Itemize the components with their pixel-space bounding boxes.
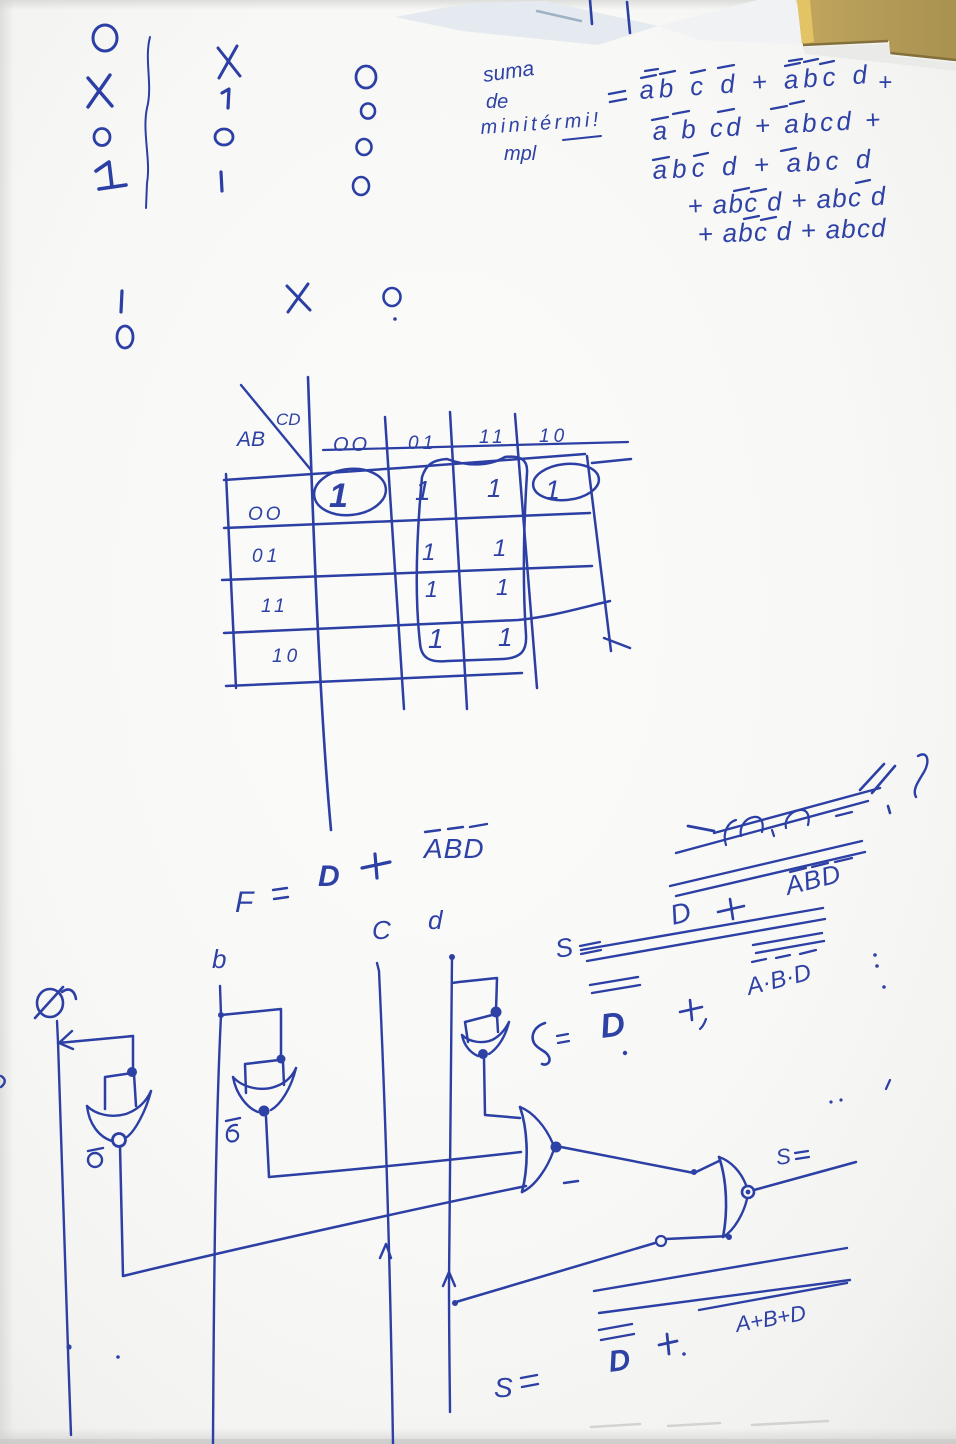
svg-text:+: + [878,69,892,96]
svg-text:D: D [598,1005,628,1046]
svg-text:S: S [494,1372,513,1403]
svg-text:OO: OO [248,504,284,525]
svg-text:C: C [372,915,391,945]
svg-text:01: 01 [252,546,281,567]
svg-text:1: 1 [425,576,438,602]
svg-text:10: 10 [539,426,568,447]
svg-text:de: de [486,91,508,113]
svg-text:10: 10 [272,646,301,667]
svg-text:d: d [428,905,444,935]
svg-text:b: b [212,944,226,974]
svg-text:1: 1 [428,623,444,654]
svg-text:1: 1 [496,574,509,600]
svg-text:01: 01 [408,433,437,454]
svg-text:11: 11 [261,596,289,617]
svg-text:1: 1 [422,539,435,566]
svg-text:D: D [606,1343,632,1379]
svg-text:11: 11 [479,427,507,448]
svg-text:mpl: mpl [504,143,537,165]
svg-text:1: 1 [545,475,560,505]
svg-text:1: 1 [493,535,506,562]
svg-text:1: 1 [329,477,348,515]
svg-text:1: 1 [487,473,501,503]
svg-text:ABD: ABD [422,833,485,864]
svg-text:D: D [318,860,340,893]
svg-text:F: F [235,886,255,919]
svg-text:AB: AB [235,428,265,451]
svg-text:1: 1 [415,475,431,506]
svg-text:OO: OO [333,434,370,456]
svg-text:CD: CD [276,410,301,429]
svg-text:1: 1 [498,622,512,652]
